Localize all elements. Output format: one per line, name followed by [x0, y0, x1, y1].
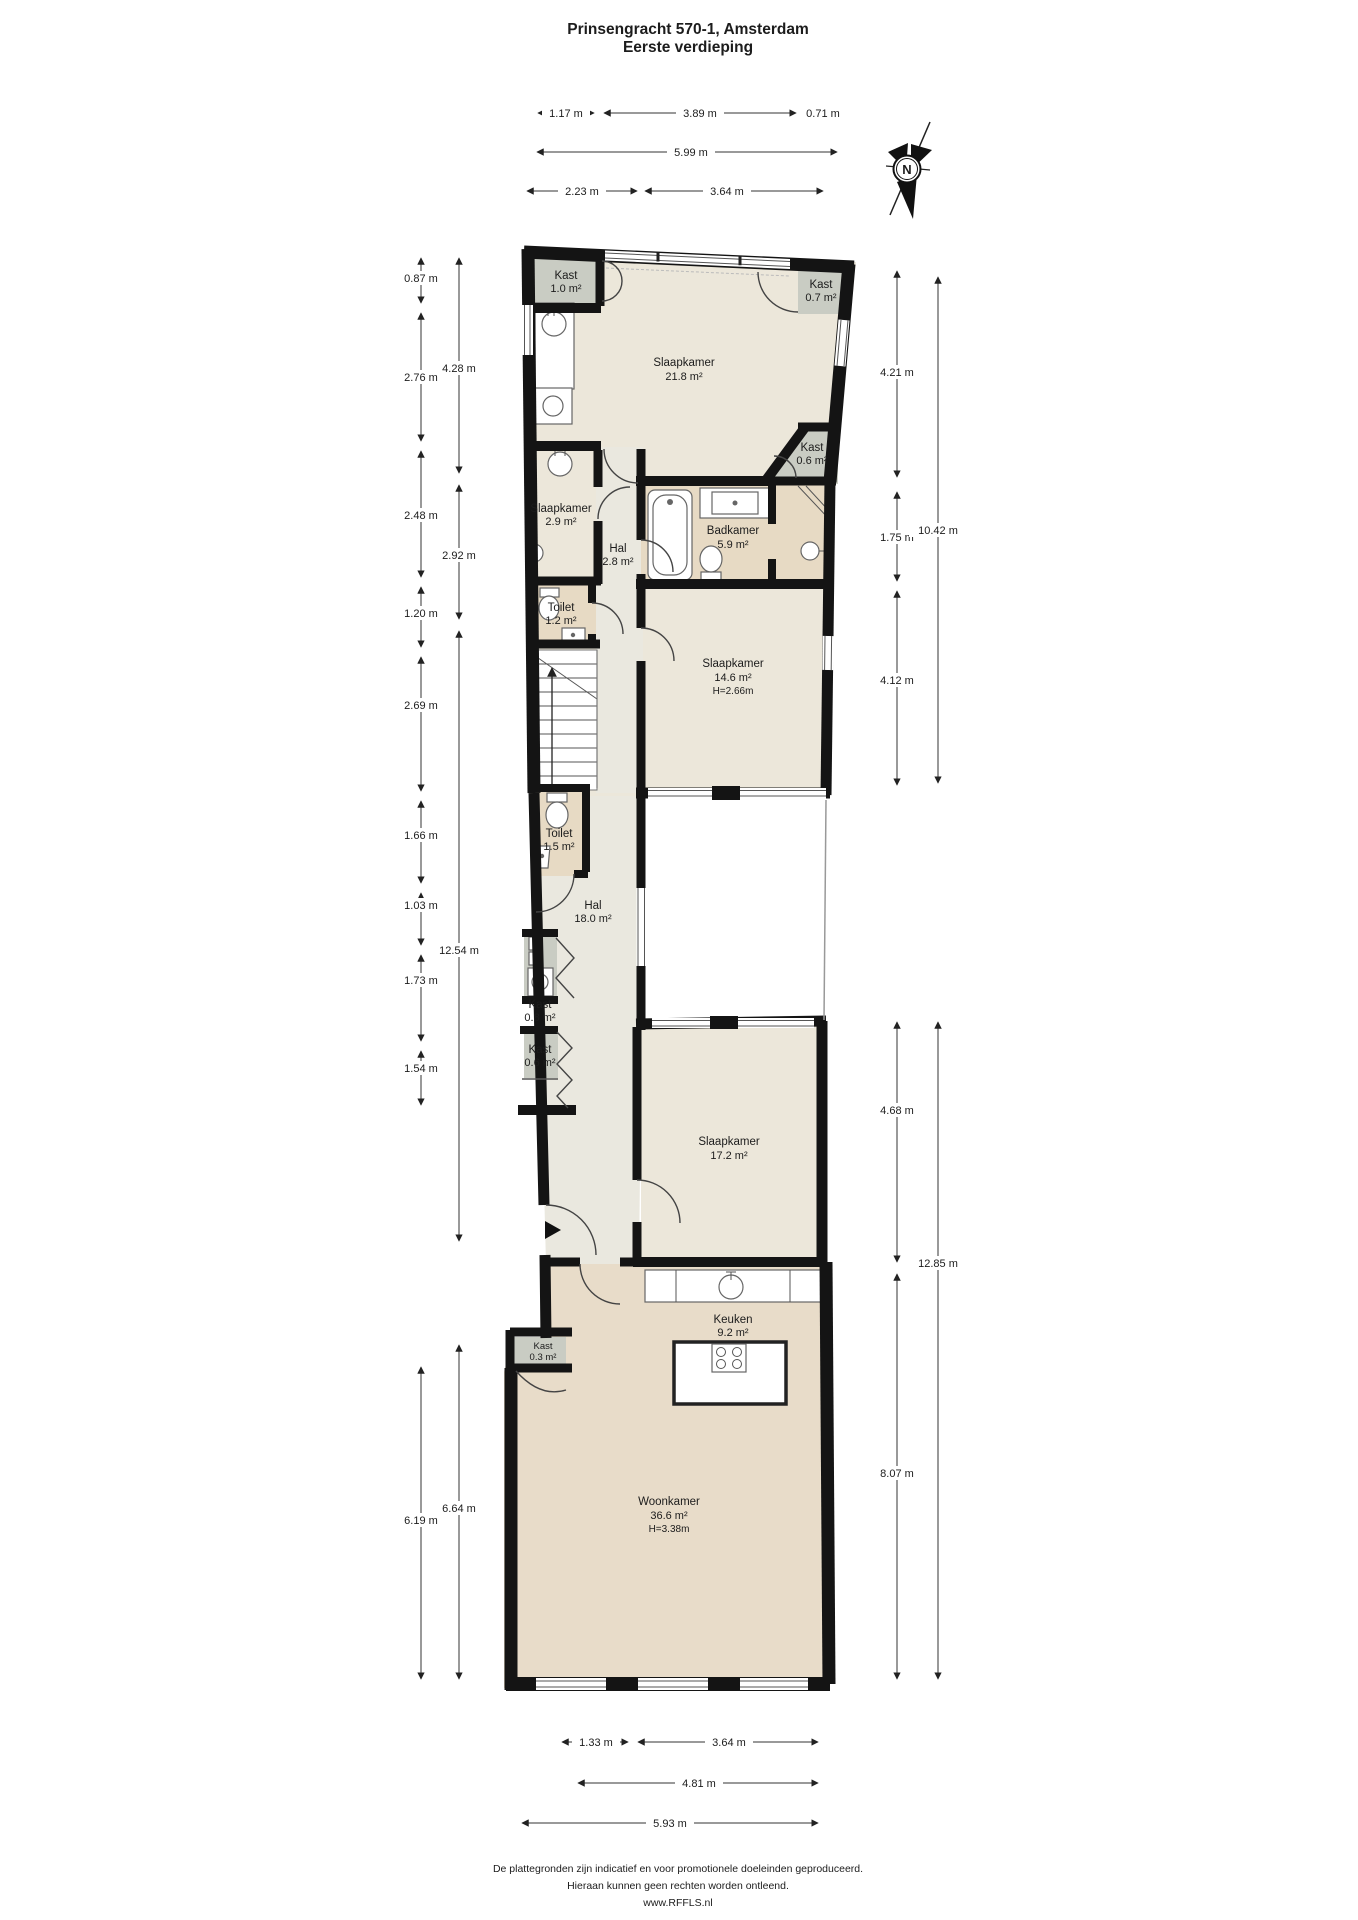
dim-left-outer-1: 2.76 m [404, 372, 438, 384]
floorplan-svg: Prinsengracht 570-1, Amsterdam Eerste ve… [0, 0, 1358, 1920]
label-kast08-name: Kast [528, 999, 552, 1011]
label-toilet15-name: Toilet [546, 828, 574, 840]
dim-top-1: 3.89 m [683, 108, 717, 120]
dim-bottom-3: 5.93 m [653, 1818, 687, 1830]
label-slk29-area: 2.9 m² [545, 516, 577, 528]
dim-left-outer-7: 1.73 m [404, 975, 438, 987]
label-woonkamer-height: H=3.38m [649, 1524, 690, 1535]
bathtub-drain [667, 499, 673, 505]
label-hal18-area: 18.0 m² [574, 913, 612, 925]
compass-icon: N [886, 122, 932, 219]
label-woonkamer-area: 36.6 m² [650, 1510, 688, 1522]
dim-right-outer-0: 10.42 m [918, 525, 958, 537]
dim-bottom-0: 1.33 m [579, 1737, 613, 1749]
dim-left-outer-8: 1.54 m [404, 1063, 438, 1075]
label-kast10-area: 1.0 m² [550, 283, 582, 295]
dim-top-4: 2.23 m [565, 186, 599, 198]
washbasin-shower-room [801, 542, 819, 560]
footer-line-1: De plattegronden zijn indicatief en voor… [493, 1863, 863, 1875]
dim-top-0: 1.17 m [549, 108, 583, 120]
label-toilet15-area: 1.5 m² [543, 841, 575, 853]
dim-right-inner-0: 4.21 m [880, 367, 914, 379]
dim-left-inner-0: 4.28 m [442, 363, 476, 375]
footer-disclaimer: De plattegronden zijn indicatief en voor… [493, 1863, 863, 1909]
void-border [824, 800, 826, 1020]
label-kast06b-area: 0.6 m² [524, 1057, 556, 1069]
washbasin-slaapkamer29 [548, 452, 572, 476]
window-left-a [522, 305, 533, 355]
window-bottom-1 [536, 1678, 606, 1690]
sink-drain [733, 501, 738, 506]
footer-line-2: Hieraan kunnen geen rechten worden ontle… [567, 1880, 789, 1892]
label-kast03-name: Kast [533, 1341, 552, 1352]
label-kast07-name: Kast [809, 279, 833, 291]
bathtub-inner [653, 495, 687, 575]
label-kast06b-name: Kast [528, 1044, 552, 1056]
label-hal28-area: 2.8 m² [602, 556, 634, 568]
dim-left-inner-3: 6.64 m [442, 1503, 476, 1515]
dim-bottom-1: 3.64 m [712, 1737, 746, 1749]
page-title: Prinsengracht 570-1, Amsterdam Eerste ve… [567, 21, 809, 56]
label-slk172-area: 17.2 m² [710, 1150, 748, 1162]
wall-right-e [826, 1262, 829, 1684]
compass-n-label: N [902, 162, 911, 177]
dim-top-5: 3.64 m [710, 186, 744, 198]
label-slk146-name: Slaapkamer [702, 658, 764, 670]
window-pier-b [712, 786, 740, 800]
window-bottom-3 [740, 1678, 808, 1690]
label-slk146-height: H=2.66m [713, 686, 754, 697]
label-slk218-name: Slaapkamer [653, 357, 715, 369]
label-slk29-name: Slaapkamer [530, 503, 592, 515]
dim-left-outer-4: 2.69 m [404, 700, 438, 712]
label-kast07-area: 0.7 m² [805, 292, 837, 304]
floorplan-page: Prinsengracht 570-1, Amsterdam Eerste ve… [0, 0, 1358, 1920]
label-kast10-name: Kast [554, 270, 578, 282]
dim-right-inner-1: 1.75 m [880, 532, 914, 544]
label-kast03-area: 0.3 m² [530, 1352, 557, 1363]
dim-bottom-2: 4.81 m [682, 1778, 716, 1790]
dim-left-outer-0: 0.87 m [404, 273, 438, 285]
washing-machine-drum [543, 396, 563, 416]
label-slk218-area: 21.8 m² [665, 371, 703, 383]
toilet-bowl-15 [546, 802, 568, 828]
label-toilet12-area: 1.2 m² [545, 615, 577, 627]
window-bottom-2 [638, 1678, 708, 1690]
dim-left-outer-3: 1.20 m [404, 608, 438, 620]
window-pier-slk17 [710, 1016, 738, 1029]
dim-right-inner-2: 4.12 m [880, 675, 914, 687]
label-slk146-area: 14.6 m² [714, 672, 752, 684]
label-hal28-name: Hal [609, 543, 626, 555]
dim-left-outer-5: 1.66 m [404, 830, 438, 842]
dim-left-outer-2: 2.48 m [404, 510, 438, 522]
label-slk172-name: Slaapkamer [698, 1136, 760, 1148]
label-badkamer-area: 5.9 m² [717, 539, 749, 551]
label-woonkamer-name: Woonkamer [638, 1496, 700, 1508]
dim-left-outer-6: 1.03 m [404, 900, 438, 912]
dim-left-inner-2: 12.54 m [439, 945, 479, 957]
label-hal18-name: Hal [584, 900, 601, 912]
label-kast06a-name: Kast [800, 442, 824, 454]
label-kast06a-area: 0.6 m² [796, 455, 828, 467]
dim-left-outer-9: 6.19 m [404, 1515, 438, 1527]
dim-left-inner-1: 2.92 m [442, 550, 476, 562]
dim-right-outer-1: 12.85 m [918, 1258, 958, 1270]
dim-top-2: 0.71 m [806, 108, 840, 120]
toilet-tank-15 [547, 793, 567, 802]
label-toilet12-name: Toilet [548, 602, 576, 614]
dim-right-inner-3: 4.68 m [880, 1105, 914, 1117]
dim-right-inner-4: 8.07 m [880, 1468, 914, 1480]
label-kast08-area: 0.8 m² [524, 1012, 556, 1024]
dim-top-3: 5.99 m [674, 147, 708, 159]
label-keuken-name: Keuken [713, 1314, 752, 1326]
title-line-1: Prinsengracht 570-1, Amsterdam [567, 21, 809, 38]
label-keuken-area: 9.2 m² [717, 1327, 749, 1339]
title-line-2: Eerste verdieping [623, 39, 753, 56]
label-badkamer-name: Badkamer [707, 525, 760, 537]
footer-line-3: www.RFFLS.nl [642, 1897, 712, 1909]
stove [712, 1344, 746, 1372]
